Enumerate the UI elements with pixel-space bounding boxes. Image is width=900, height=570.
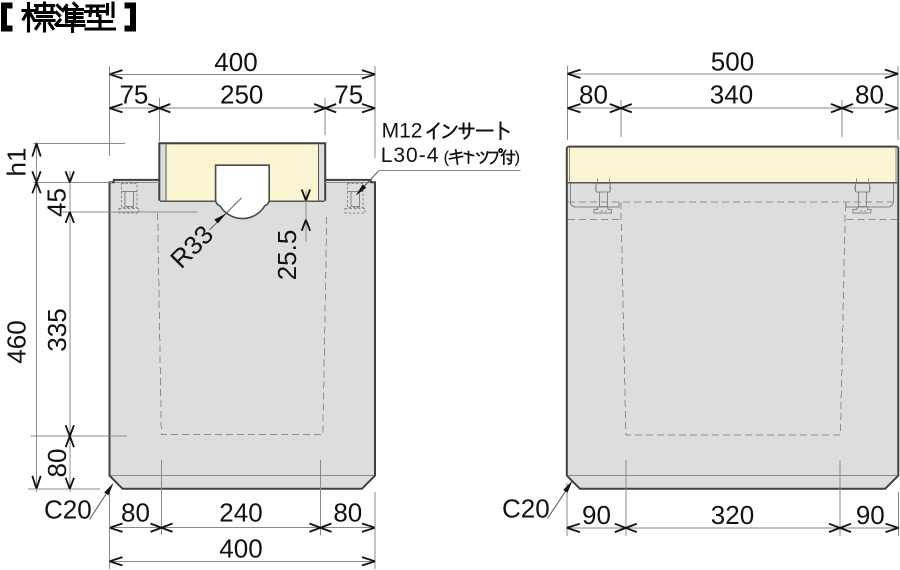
svg-text:90: 90 (582, 500, 611, 530)
svg-text:500: 500 (711, 46, 754, 76)
svg-text:M12: M12 (382, 120, 423, 143)
svg-text:335: 335 (42, 308, 72, 351)
svg-text:80: 80 (333, 498, 362, 528)
svg-text:45: 45 (42, 188, 72, 217)
svg-text:90: 90 (856, 500, 885, 530)
svg-text:75: 75 (334, 79, 363, 109)
svg-text:460: 460 (2, 320, 32, 363)
svg-text:80: 80 (121, 498, 150, 528)
svg-text:C20: C20 (502, 494, 550, 524)
svg-text:): ) (515, 148, 521, 167)
svg-text:75: 75 (119, 79, 148, 109)
svg-text:L30-4: L30-4 (381, 144, 440, 167)
svg-text:400: 400 (219, 534, 262, 564)
svg-text:h1: h1 (2, 148, 32, 177)
svg-text:250: 250 (220, 79, 263, 109)
svg-text:80: 80 (855, 79, 884, 109)
svg-text:240: 240 (219, 498, 262, 528)
svg-text:80: 80 (42, 449, 72, 478)
svg-text:C20: C20 (44, 495, 92, 525)
svg-text:340: 340 (710, 79, 753, 109)
svg-text:25.5: 25.5 (272, 230, 302, 281)
svg-text:400: 400 (214, 47, 257, 77)
svg-text:80: 80 (579, 79, 608, 109)
svg-text:320: 320 (711, 500, 754, 530)
svg-text:(: ( (444, 148, 450, 167)
